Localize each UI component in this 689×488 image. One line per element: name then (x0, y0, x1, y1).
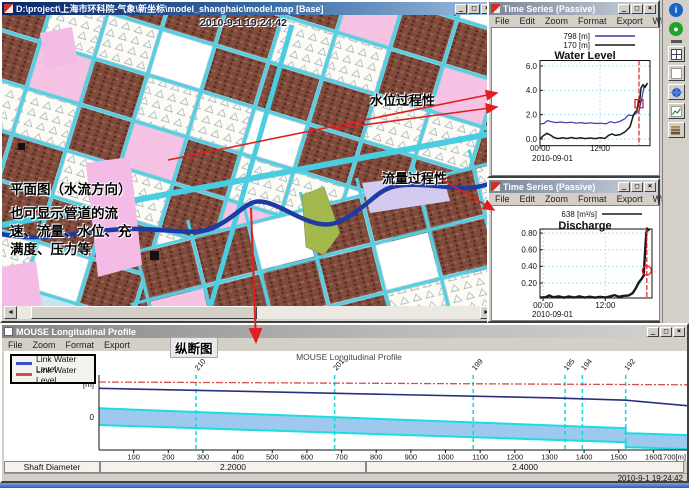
taskbar[interactable] (0, 483, 689, 488)
svg-text:6.0: 6.0 (526, 62, 538, 71)
svg-text:2.0: 2.0 (526, 110, 538, 119)
map-window-titlebar[interactable]: D:\project\上海市环科院-气象\新坐标\model_shanghaic… (2, 2, 495, 15)
profile-legend: Link Water Level Link Water Level (10, 354, 96, 384)
legend-label: 798 [m] (563, 32, 590, 41)
status-timestamp: 2010-9-1 19:24:42 (618, 474, 683, 483)
node-label: 194 (579, 357, 594, 372)
node-label: 192 (622, 357, 637, 372)
annotation-discharge-process: 流量过程性 (382, 168, 447, 187)
annotation-profile-view: 纵断图 (170, 337, 218, 358)
svg-text:12:00: 12:00 (595, 301, 616, 310)
discharge-titlebar[interactable]: Time Series (Passive) _ □ × (489, 180, 658, 193)
info-icon[interactable]: i (668, 2, 685, 18)
discharge-window: Time Series (Passive) _ □ × FileEditZoom… (487, 178, 660, 323)
maximize-button[interactable]: □ (631, 182, 643, 192)
profile-titlebar[interactable]: MOUSE Longitudinal Profile _ □ × (2, 325, 687, 338)
profile-plot: 2102011991951941921002003004005006007008… (99, 357, 687, 461)
chart-title: Discharge (558, 220, 611, 232)
svg-text:0.20: 0.20 (521, 279, 537, 288)
menu-item-edit[interactable]: Edit (520, 16, 536, 26)
discharge-plot: 0.800.600.400.2000:0012:002010-09-01 (521, 229, 652, 319)
menu-item-zoom[interactable]: Zoom (545, 194, 568, 204)
water-level-window: Time Series (Passive) _ □ × FileEditZoom… (487, 0, 660, 178)
map-viewport[interactable]: 2010-9-1 19:24:42 水位过程性 流量过程性 平面图（水流方向） … (2, 15, 495, 308)
map-marker (18, 143, 25, 150)
compass-tool-icon[interactable] (668, 84, 685, 100)
network-map (2, 15, 495, 308)
y-axis-zero: 0 (90, 413, 95, 422)
shaft-diameter-row: Shaft Diameter 2.2000 2.4000 (2, 461, 687, 473)
shaft-diameter-label: Shaft Diameter (4, 461, 100, 473)
water-level-title: Time Series (Passive) (503, 4, 618, 14)
node-label: 195 (562, 357, 577, 372)
water-level-plot: 6.04.02.00.000:0012:002010-09-01 (526, 61, 650, 164)
annotation-note-line: 满度、压力等 (10, 241, 132, 259)
water-level-menubar: FileEditZoomFormatExportWindow (489, 15, 658, 27)
close-button[interactable]: × (644, 4, 656, 14)
close-button[interactable]: × (644, 182, 656, 192)
series-line (540, 84, 648, 125)
grid-tool-icon[interactable] (668, 46, 685, 62)
timeseries-icon (491, 182, 500, 191)
app-icon (4, 4, 13, 13)
x-tick-label: 1000 (437, 453, 454, 462)
menu-item-edit[interactable]: Edit (520, 194, 536, 204)
minimize-button[interactable]: _ (618, 182, 630, 192)
x-tick-label: 1100 (472, 453, 488, 462)
status-ok-icon[interactable]: ● (668, 21, 685, 37)
svg-text:0.60: 0.60 (521, 246, 537, 255)
profile-icon (4, 327, 13, 336)
water-level-chart: 798 [m] 170 [m] Water Level 6.04.02.00.0… (492, 28, 659, 175)
svg-text:00:00: 00:00 (533, 301, 554, 310)
menu-item-zoom[interactable]: Zoom (33, 340, 56, 350)
profile-statusbar: 2010-9-1 19:24:42 (4, 473, 687, 482)
map-window-title: D:\project\上海市环科院-气象\新坐标\model_shanghaic… (16, 2, 455, 15)
x-tick-label: 1200 (506, 453, 523, 462)
menu-item-zoom[interactable]: Zoom (545, 16, 568, 26)
x-tick-label: 200 (162, 453, 175, 462)
profile-chart: MOUSE Longitudinal Profile [m] 0 2102011… (4, 351, 687, 461)
x-tick-label: 300 (197, 453, 210, 462)
maximize-button[interactable]: □ (631, 4, 643, 14)
land-parcel (2, 261, 42, 308)
link-water-level-red (99, 382, 687, 385)
map-timestamp: 2010-9-1 19:24:42 (200, 17, 287, 29)
minimize-button[interactable]: _ (455, 4, 467, 14)
desktop: { "app": { "window_controls": { "minimiz… (0, 0, 689, 488)
profile-title: MOUSE Longitudinal Profile (16, 327, 647, 337)
menu-item-format[interactable]: Format (66, 340, 95, 350)
minimize-button[interactable]: _ (618, 4, 630, 14)
discharge-chart: 638 [m³/s] Discharge 0.800.600.400.2000:… (492, 206, 659, 320)
map-marker (150, 251, 159, 260)
discharge-menubar: FileEditZoomFormatExportWindow (489, 193, 658, 205)
x-tick-label: 400 (231, 453, 244, 462)
chart-title: MOUSE Longitudinal Profile (296, 352, 402, 362)
menu-item-format[interactable]: Format (578, 194, 607, 204)
x-tick-label: 1300 (541, 453, 558, 462)
annotation-note-line: 也可显示管道的流 (10, 205, 132, 223)
menu-item-format[interactable]: Format (578, 16, 607, 26)
x-tick-label: 500 (266, 453, 279, 462)
date-label: 2010-09-01 (532, 310, 573, 319)
series-line (540, 83, 648, 139)
svg-text:0.0: 0.0 (526, 135, 538, 144)
blank-tool-icon[interactable] (668, 65, 685, 81)
profile-window: MOUSE Longitudinal Profile _ □ × FileZoo… (0, 323, 689, 483)
legend-swatch (16, 373, 32, 376)
node-label: 199 (470, 357, 485, 372)
x-tick-label: 700 (335, 453, 348, 462)
x-tick-label: 1400 (576, 453, 593, 462)
annotation-note-line: 速、流量、水位、充 (10, 223, 132, 241)
legend-item: Link Water Level (16, 369, 90, 380)
profile-menubar: FileZoomFormatExport (2, 338, 687, 351)
land-parcel (40, 27, 78, 69)
x-tick-label: 800 (370, 453, 383, 462)
series-line (540, 229, 649, 298)
svg-text:0.80: 0.80 (521, 229, 537, 238)
maximize-button[interactable]: □ (660, 327, 672, 337)
x-tick-label: 900 (405, 453, 418, 462)
x-axis-end-label: 1700[m] (659, 453, 686, 462)
separator (671, 40, 682, 43)
x-tick-label: 1500 (610, 453, 627, 462)
map-window: D:\project\上海市环科院-气象\新坐标\model_shanghaic… (0, 0, 497, 323)
shaft-diameter-value: 2.2000 (100, 461, 366, 473)
x-tick-label: 100 (127, 453, 140, 462)
maximize-button[interactable]: □ (468, 4, 480, 14)
minimize-button[interactable]: _ (647, 327, 659, 337)
menu-item-export[interactable]: Export (617, 194, 643, 204)
link-water-level-blue (99, 388, 687, 406)
right-toolbar: i ● (662, 0, 689, 323)
date-label: 2010-09-01 (532, 154, 573, 163)
legend-label: 638 [m³/s] (561, 210, 597, 219)
scrollbar-thumb[interactable] (31, 306, 257, 319)
chart-tool-icon[interactable] (668, 103, 685, 119)
node-label: 210 (193, 357, 208, 372)
scroll-left-button[interactable]: ◄ (4, 306, 17, 319)
map-horizontal-scrollbar[interactable]: ◄ ► (4, 306, 493, 319)
annotation-plan-view: 平面图（水流方向） (10, 178, 132, 198)
legend-label: 170 [m] (563, 41, 590, 50)
legend-label: Link Water Level (36, 365, 90, 385)
svg-text:4.0: 4.0 (526, 86, 538, 95)
legend-swatch (16, 362, 32, 365)
shaft-diameter-value: 2.4000 (366, 461, 684, 473)
x-tick-label: 600 (301, 453, 314, 462)
timeseries-icon (491, 4, 500, 13)
svg-text:0.40: 0.40 (521, 262, 537, 271)
water-level-titlebar[interactable]: Time Series (Passive) _ □ × (489, 2, 658, 15)
layers-tool-icon[interactable] (668, 122, 685, 138)
discharge-title: Time Series (Passive) (503, 182, 618, 192)
close-button[interactable]: × (673, 327, 685, 337)
annotation-water-level-process: 水位过程性 (370, 90, 435, 109)
menu-item-export[interactable]: Export (617, 16, 643, 26)
menu-item-export[interactable]: Export (104, 340, 130, 350)
menu-item-file[interactable]: File (8, 340, 23, 350)
annotation-note: 也可显示管道的流 速、流量、水位、充 满度、压力等 (10, 205, 132, 259)
menu-item-file[interactable]: File (495, 16, 510, 26)
menu-item-file[interactable]: File (495, 194, 510, 204)
